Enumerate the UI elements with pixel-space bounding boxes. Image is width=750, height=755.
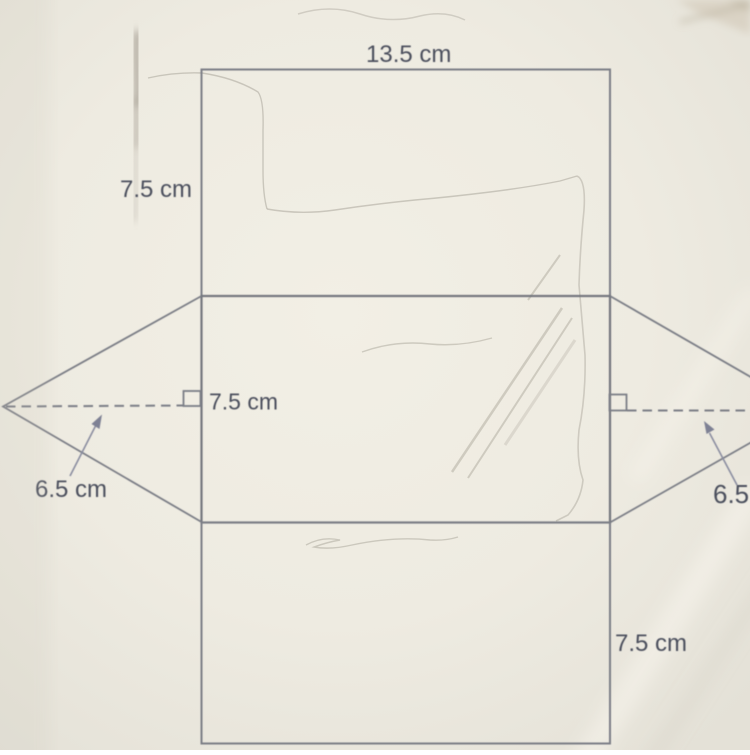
svg-text:7.5 cm: 7.5 cm	[615, 630, 687, 657]
svg-text:6.5: 6.5	[713, 479, 749, 509]
svg-text:7.5 cm: 7.5 cm	[120, 176, 192, 203]
svg-text:7.5 cm: 7.5 cm	[209, 389, 278, 415]
svg-text:13.5 cm: 13.5 cm	[366, 41, 451, 68]
